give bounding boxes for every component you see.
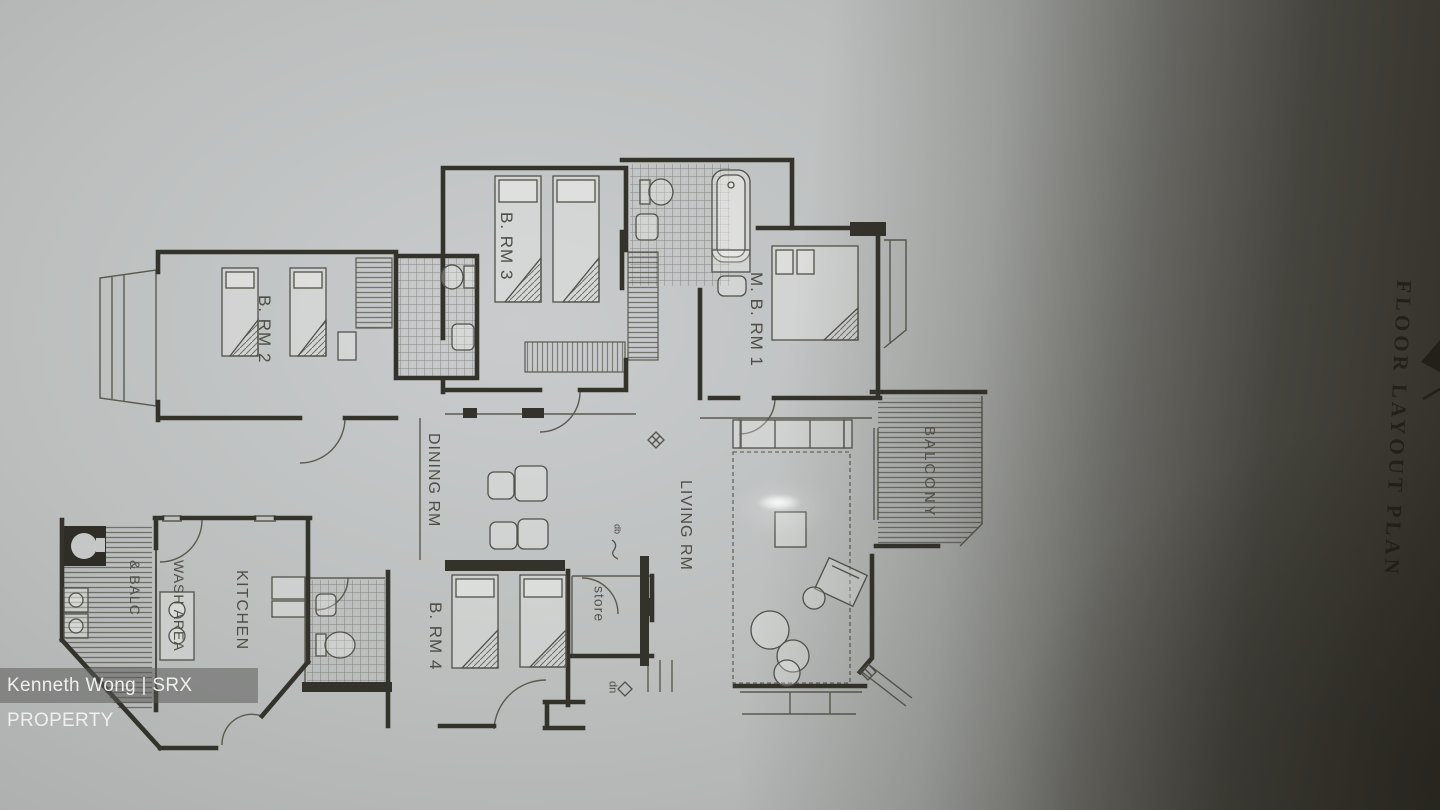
- label-dn: dn: [606, 681, 618, 693]
- toilet: [464, 266, 475, 288]
- dining-chair: [488, 472, 514, 499]
- wardrobe: [628, 252, 658, 360]
- label-store: store: [592, 586, 607, 622]
- door-swing-arc: [540, 392, 580, 432]
- label-master-bedroom: M. B. RM 1: [747, 272, 765, 367]
- wardrobe: [356, 258, 392, 328]
- sink: [452, 324, 474, 350]
- entry-steps: [648, 660, 672, 692]
- label-kitchen: KITCHEN: [232, 570, 249, 651]
- door-swing-arc: [494, 680, 546, 729]
- watermark: Kenneth Wong | SRX PROPERTY: [0, 668, 258, 703]
- bay-window: [100, 270, 156, 406]
- balcony-door: [874, 428, 878, 520]
- label-db: db: [612, 524, 621, 534]
- sink: [636, 214, 658, 240]
- dining-chair: [518, 519, 548, 549]
- living-bay-window: [740, 692, 862, 714]
- db-squiggle: [612, 540, 618, 559]
- cabinet: [525, 342, 625, 372]
- door-swing-arc: [160, 520, 202, 562]
- diamond-symbol-icon: [618, 682, 632, 696]
- sink: [316, 594, 336, 616]
- diamond-symbol-icon: [648, 432, 664, 448]
- dining-chair: [490, 522, 517, 549]
- partial-logo: [1421, 340, 1440, 399]
- label-bedroom4: B. RM 4: [426, 602, 444, 670]
- label-living: LIVING RM: [676, 480, 693, 571]
- door-swing-arc: [300, 418, 345, 463]
- label-balcony: BALCONY: [921, 426, 937, 519]
- master-bay-window: [884, 240, 906, 348]
- door-swing-arc: [222, 714, 262, 745]
- label-dining: DINING RM: [424, 433, 441, 527]
- camera-glare: [756, 494, 802, 511]
- label-bedroom2: B. RM 2: [255, 295, 273, 363]
- floorplan-photo: B. RM 3 M. B. RM 1 B. RM 2 DINING RM LIV…: [0, 0, 1440, 810]
- sofa: [740, 420, 844, 448]
- dining-table: [515, 466, 547, 501]
- label-bedroom3: B. RM 3: [497, 212, 515, 280]
- kitchen-cabinet: [272, 577, 305, 599]
